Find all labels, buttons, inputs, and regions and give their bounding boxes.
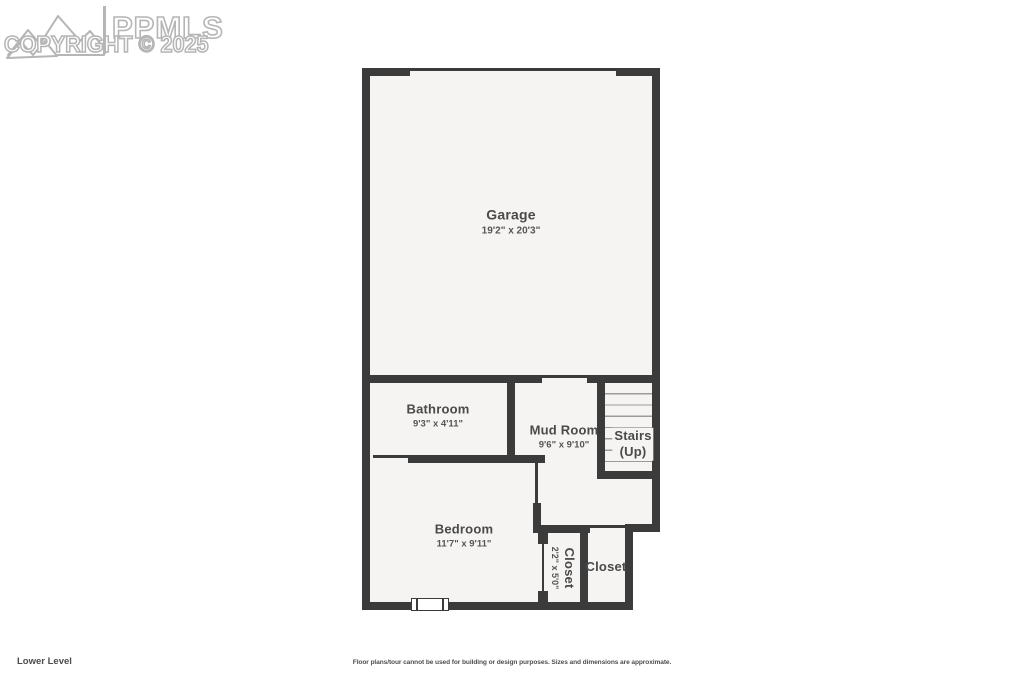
closet-left-door-line bbox=[542, 544, 544, 591]
room-label-stairs: Stairs (Up) bbox=[612, 428, 653, 461]
bedroom-dims: 11'7" x 9'11" bbox=[435, 539, 493, 551]
wall-garage-bottom-left bbox=[362, 375, 542, 383]
wall-bottom bbox=[362, 602, 633, 610]
closet-left-jamb-bottom bbox=[538, 591, 548, 602]
bathroom-door-line bbox=[373, 455, 408, 458]
wall-garage-bottom-right bbox=[587, 375, 660, 383]
bathroom-name: Bathroom bbox=[407, 401, 470, 417]
closet-right-door-line bbox=[590, 525, 625, 528]
closet-left-dims: 2'2" x 5'0" bbox=[550, 547, 560, 590]
wall-right bbox=[652, 68, 660, 532]
room-label-garage: Garage 19'2" x 20'3" bbox=[482, 207, 541, 238]
ppmls-watermark: PPMLS COPYRIGHT © 2025 bbox=[4, 4, 234, 64]
garage-mudroom-door-line bbox=[542, 375, 587, 378]
room-label-closet-right: Closet bbox=[586, 559, 627, 575]
disclaimer-text: Floor plans/tour cannot be used for buil… bbox=[353, 659, 671, 666]
wall-top-left bbox=[362, 68, 410, 76]
garage-door-line bbox=[410, 68, 618, 71]
mudroom-dims: 9'6" x 9'10" bbox=[530, 440, 599, 452]
stairs-name: Stairs bbox=[614, 428, 651, 444]
floor-plan-page: PPMLS COPYRIGHT © 2025 Garage 19'2" x 20… bbox=[0, 0, 1024, 682]
closet-left-name: Closet bbox=[561, 547, 576, 590]
bathroom-dims: 9'3" x 4'11" bbox=[407, 419, 470, 431]
wall-bathroom-divider bbox=[507, 383, 515, 463]
garage-name: Garage bbox=[482, 207, 541, 225]
closet-right-name: Closet bbox=[586, 559, 627, 575]
wall-bathroom-bottom bbox=[408, 455, 545, 463]
room-label-bedroom: Bedroom 11'7" x 9'11" bbox=[435, 521, 493, 550]
mudroom-name: Mud Room bbox=[530, 422, 599, 438]
copyright-watermark: COPYRIGHT © 2025 bbox=[4, 31, 209, 58]
room-label-closet-left: Closet 2'2" x 5'0" bbox=[550, 547, 576, 590]
bedroom-name: Bedroom bbox=[435, 521, 493, 537]
room-label-bathroom: Bathroom 9'3" x 4'11" bbox=[407, 401, 470, 430]
garage-dims: 19'2" x 20'3" bbox=[482, 225, 541, 238]
room-label-mudroom: Mud Room 9'6" x 9'10" bbox=[530, 422, 599, 451]
closet-left-jamb-top bbox=[538, 533, 548, 544]
window-icon bbox=[411, 598, 449, 611]
wall-left bbox=[362, 68, 370, 610]
level-label: Lower Level bbox=[17, 656, 72, 667]
bedroom-doorway-line bbox=[535, 463, 538, 503]
stairs-direction: (Up) bbox=[614, 444, 651, 460]
wall-right-connector bbox=[625, 524, 660, 532]
wall-stairs-bottom bbox=[597, 471, 660, 479]
